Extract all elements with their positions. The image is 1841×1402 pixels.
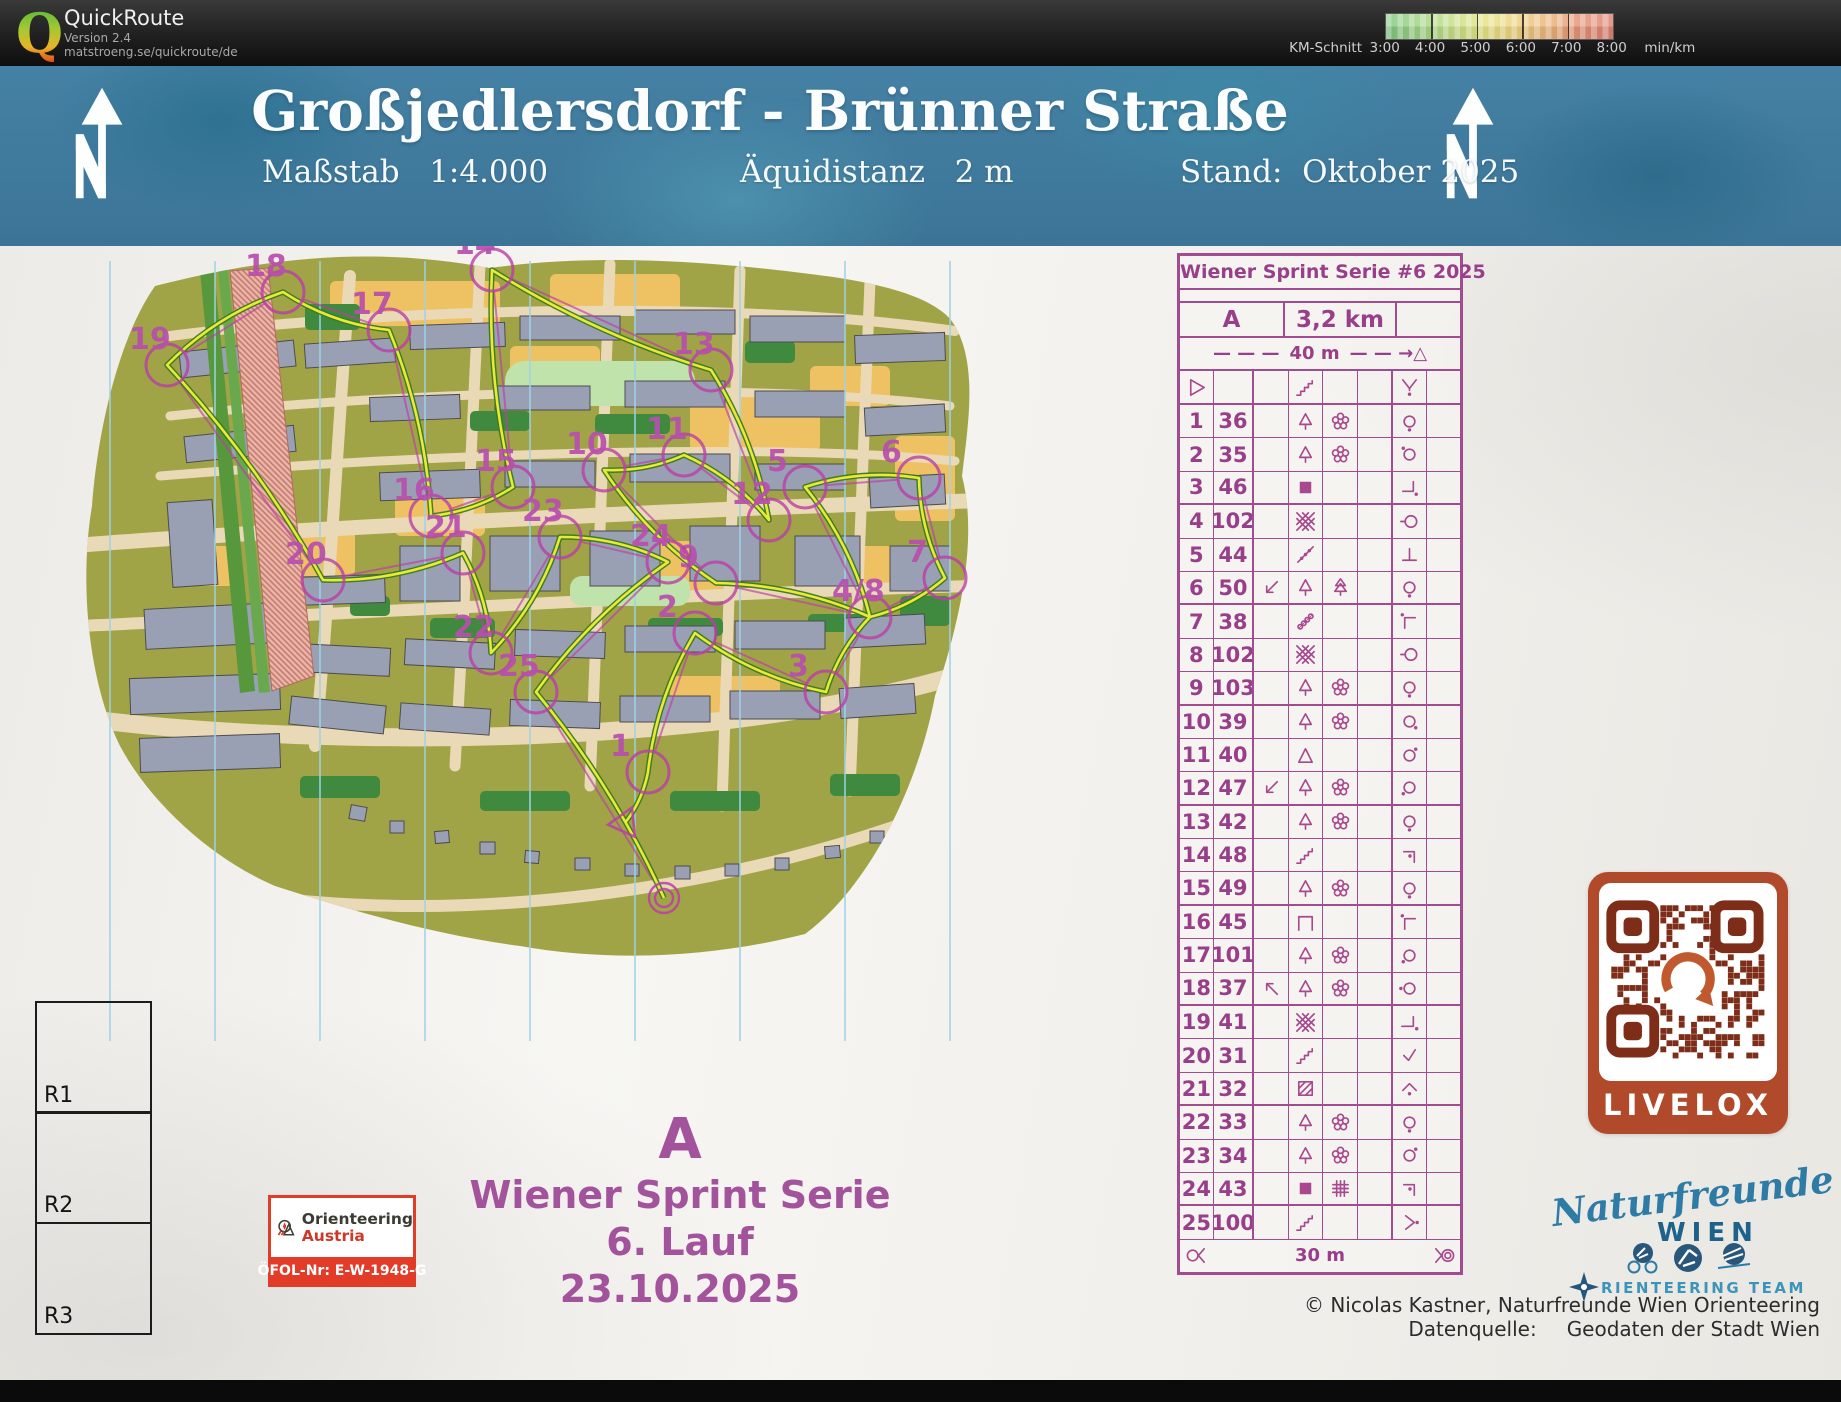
start-distance: 40 m [1290, 343, 1340, 364]
compass-icon [277, 1210, 296, 1246]
card-row: 650 [1180, 572, 1460, 605]
circle-dot-s-icon [1398, 410, 1421, 433]
card-row: 738 [1180, 605, 1460, 638]
card-row: 9103 [1180, 672, 1460, 705]
card-spacer [1180, 290, 1460, 303]
circle-dot-s-icon [1398, 576, 1421, 599]
flower-icon [1329, 710, 1352, 733]
app-header: Q QuickRoute Version 2.4 matstroeng.se/q… [0, 0, 1841, 66]
control-number: 1 [610, 729, 631, 764]
corner-nw-dot-icon [1398, 610, 1421, 633]
north-arrow-icon [66, 80, 138, 206]
sport-icons [1625, 1242, 1753, 1274]
control-number: 12 [731, 477, 773, 512]
map-title: Großjedlersdorf - Brünner Straße [180, 78, 1360, 143]
circle-dot-nw-icon [1398, 443, 1421, 466]
map-title-banner: Großjedlersdorf - Brünner Straße Maßstab… [0, 66, 1841, 246]
control-number: 13 [673, 327, 715, 362]
orienteering-map: 1234/85679101112131415161718192021222324… [50, 246, 990, 1056]
credit-line1: © Nicolas Kastner, Naturfreunde Wien Ori… [1100, 1293, 1820, 1317]
angle-dot-icon [1398, 1211, 1421, 1234]
flower-icon [1329, 877, 1352, 900]
livelox-label: LIVELOX [1588, 1088, 1788, 1122]
app-title: QuickRoute [64, 6, 184, 30]
control-description-card: Wiener Sprint Serie #6 2025 A 3,2 km — —… [1177, 253, 1463, 1275]
flower-icon [1329, 676, 1352, 699]
card-row: 17101 [1180, 939, 1460, 972]
livelox-qr-panel: LIVELOX [1588, 872, 1788, 1134]
control-number: 15 [475, 444, 517, 479]
circle-dot-w-icon [1398, 977, 1421, 1000]
orienteering-austria-logo: Orienteering Austria ÖFOL-Nr: E-W-1948-G [268, 1195, 416, 1287]
control-number: 25 [498, 649, 540, 684]
event-text-block: A Wiener Sprint Serie 6. Lauf 23.10.2025 [440, 1108, 920, 1313]
map-date-stand: Stand: Oktober 2025 [1180, 154, 1519, 190]
finish-icon [1427, 1244, 1460, 1267]
circle-dot-sw-icon [1398, 776, 1421, 799]
control-number: 23 [522, 494, 564, 529]
card-row: 2334 [1180, 1140, 1460, 1173]
pace-tick-label: 6:00 [1498, 40, 1543, 56]
tree-icon [1294, 1144, 1317, 1167]
austria-logo-line2: Austria [302, 1228, 413, 1245]
naturfreunde-wien-logo: Naturfreunde WIEN RIENTEERING TEAM [1545, 1176, 1825, 1298]
finish-left-icon [1185, 1244, 1208, 1267]
card-row: 2031 [1180, 1039, 1460, 1072]
tree-icon [1294, 776, 1317, 799]
control-number: 22 [453, 610, 495, 645]
registration-box-R2: R2 [35, 1111, 152, 1224]
tee-dot-icon [1398, 1011, 1421, 1034]
circle-dot-s-icon [1398, 810, 1421, 833]
arrow-nw-icon [1260, 977, 1283, 1000]
card-row: 2132 [1180, 1073, 1460, 1106]
start-triangle-icon [1185, 376, 1208, 399]
registration-boxes: R1R2R3 [35, 1003, 148, 1335]
logo-letter: Q [16, 4, 63, 62]
app-version: Version 2.4 [64, 31, 131, 45]
app-url: matstroeng.se/quickroute/de [64, 45, 238, 59]
card-row: 346 [1180, 472, 1460, 505]
building-icon [1294, 1177, 1317, 1200]
hatch-icon [1294, 643, 1317, 666]
card-course-row: A 3,2 km [1180, 303, 1460, 338]
pace-tick-label: 7:00 [1544, 40, 1589, 56]
registration-box-R1: R1 [35, 1001, 152, 1114]
event-run: 6. Lauf [440, 1219, 920, 1266]
card-title: Wiener Sprint Serie #6 2025 [1180, 256, 1460, 290]
corner-ne-dot-icon [1398, 844, 1421, 867]
skier-icon [1715, 1242, 1753, 1272]
corner-se-dot-icon [1398, 476, 1421, 499]
card-row: 1448 [1180, 839, 1460, 872]
tree-icon [1294, 710, 1317, 733]
card-row: 1549 [1180, 872, 1460, 905]
pace-scale-name: KM-Schnitt [1253, 40, 1362, 56]
start-distance-row: — — — 40 m — — →△ [1180, 338, 1460, 371]
austria-logo-line1: Orienteering [302, 1211, 413, 1228]
flower-icon [1329, 977, 1352, 1000]
conifer-icon [1329, 576, 1352, 599]
control-number: 5 [767, 444, 788, 479]
pace-tick-label: 8:00 [1589, 40, 1634, 56]
stairs-icon [1294, 1211, 1317, 1234]
control-number: 11 [646, 412, 688, 447]
caret-dot-icon [1398, 1077, 1421, 1100]
card-row: 1140 [1180, 739, 1460, 772]
control-number: 14 [454, 246, 496, 262]
pace-tick-label: 5:00 [1453, 40, 1498, 56]
finish-distance: 30 m [1213, 1245, 1427, 1266]
card-row: 2443 [1180, 1173, 1460, 1206]
pace-unit: min/km [1634, 40, 1695, 56]
cyclist-icon [1625, 1242, 1661, 1274]
tee-icon [1398, 543, 1421, 566]
course-name: A [1180, 303, 1285, 336]
flower-icon [1329, 443, 1352, 466]
circle-dot-se-icon [1398, 710, 1421, 733]
tree-icon [1294, 810, 1317, 833]
control-number: 19 [129, 322, 171, 357]
control-number: 18 [245, 249, 287, 284]
map-credits: © Nicolas Kastner, Naturfreunde Wien Ori… [1100, 1293, 1820, 1341]
card-row: 235 [1180, 438, 1460, 471]
tree-icon [1294, 576, 1317, 599]
control-number: 24 [630, 519, 672, 554]
control-number: 7 [907, 535, 928, 570]
building-icon [1294, 476, 1317, 499]
control-number: 10 [566, 427, 608, 462]
check-icon [1398, 1044, 1421, 1067]
pace-tick-label: 3:00 [1362, 40, 1407, 56]
arrow-sw-icon [1260, 576, 1283, 599]
circle-dot-ne-icon [1398, 744, 1421, 767]
stairs-icon [1294, 376, 1317, 399]
control-number: 20 [285, 537, 327, 572]
circle-dot-s-icon [1398, 676, 1421, 699]
finish-row: 30 m [1180, 1240, 1460, 1272]
corner-nw-dot-icon [1398, 911, 1421, 934]
tree-icon [1294, 877, 1317, 900]
flower-icon [1329, 410, 1352, 433]
card-row: 136 [1180, 405, 1460, 438]
quickroute-export-screenshot: Q QuickRoute Version 2.4 matstroeng.se/q… [0, 0, 1841, 1402]
card-row: 1247 [1180, 772, 1460, 805]
arrow-sw-icon [1260, 776, 1283, 799]
flower-icon [1329, 776, 1352, 799]
quickroute-logo-icon: Q [12, 4, 64, 62]
hatch-icon [1294, 1011, 1317, 1034]
runner-icon [1671, 1242, 1705, 1274]
junction-icon [1398, 376, 1421, 399]
flower-icon [1329, 1111, 1352, 1134]
tree-icon [1294, 944, 1317, 967]
pace-color-scale [1385, 13, 1614, 40]
stairs-icon [1294, 1044, 1317, 1067]
card-row: 544 [1180, 539, 1460, 572]
card-row: 1837 [1180, 973, 1460, 1006]
card-row: 2233 [1180, 1106, 1460, 1139]
card-row: 1645 [1180, 906, 1460, 939]
finish-right-icon [1432, 1244, 1455, 1267]
circle-dot-ne-icon [1398, 1144, 1421, 1167]
control-number: 4/8 [832, 574, 885, 609]
control-number: 17 [351, 287, 393, 322]
pace-tick-label: 4:00 [1407, 40, 1452, 56]
event-course-letter: A [440, 1108, 920, 1172]
qr-code [1599, 883, 1777, 1081]
control-number: 6 [881, 435, 902, 470]
circle-crossbar-icon [1398, 510, 1421, 533]
map-equidistance: Äquidistanz 2 m [740, 154, 1014, 190]
triangle-icon [1294, 744, 1317, 767]
stairs-icon [1294, 844, 1317, 867]
course-length: 3,2 km [1285, 303, 1397, 336]
canopy-icon [1294, 911, 1317, 934]
card-row: 25100 [1180, 1206, 1460, 1239]
corner-ne-dot-icon [1398, 1177, 1421, 1200]
bottom-black-bar [0, 1380, 1841, 1402]
control-number: 16 [393, 473, 435, 508]
taped-route-icon [1180, 1244, 1213, 1267]
control-number: 21 [425, 510, 467, 545]
card-row [1180, 371, 1460, 405]
credit-line2: Datenquelle:Geodaten der Stadt Wien [1100, 1317, 1820, 1341]
card-row: 8102 [1180, 639, 1460, 672]
flower-icon [1329, 810, 1352, 833]
tree-icon [1294, 443, 1317, 466]
map-scale: Maßstab 1:4.000 [262, 154, 548, 190]
grid-icon [1329, 1177, 1352, 1200]
tree-icon [1294, 977, 1317, 1000]
control-number: 3 [788, 649, 809, 684]
circle-crossbar-icon [1398, 643, 1421, 666]
course-climb [1397, 303, 1460, 336]
flower-icon [1329, 1144, 1352, 1167]
fence-icon [1294, 543, 1317, 566]
pace-scale-labels: KM-Schnitt3:004:005:006:007:008:00min/km [1253, 40, 1695, 56]
flower-icon [1329, 944, 1352, 967]
circle-dot-sw-icon [1398, 944, 1421, 967]
chain-icon [1294, 610, 1317, 633]
registration-box-R3: R3 [35, 1222, 152, 1335]
circle-dot-s-icon [1398, 877, 1421, 900]
control-rows: 1362353464102544650738810291031039114012… [1180, 371, 1460, 1240]
card-row: 1342 [1180, 806, 1460, 839]
hatch-icon [1294, 510, 1317, 533]
tree-icon [1294, 676, 1317, 699]
event-series: Wiener Sprint Serie [440, 1172, 920, 1219]
oefol-number: ÖFOL-Nr: E-W-1948-G [271, 1257, 413, 1284]
hatch-square-icon [1294, 1077, 1317, 1100]
control-number: 2 [657, 590, 678, 625]
tree-icon [1294, 1111, 1317, 1134]
card-row: 4102 [1180, 505, 1460, 538]
tree-icon [1294, 410, 1317, 433]
event-date: 23.10.2025 [440, 1266, 920, 1313]
card-row: 1941 [1180, 1006, 1460, 1039]
card-row: 1039 [1180, 706, 1460, 739]
circle-dot-s-icon [1398, 1111, 1421, 1134]
